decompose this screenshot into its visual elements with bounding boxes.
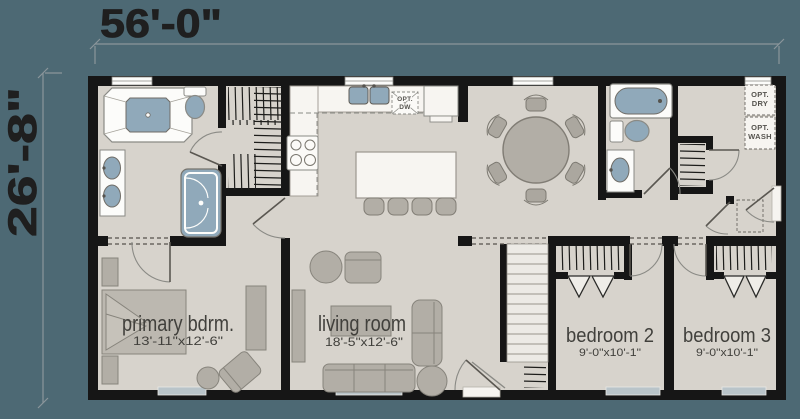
staircase [507, 244, 548, 362]
side-door-threshold [772, 186, 781, 221]
closet-rod-hatch [680, 144, 705, 186]
ottoman [417, 366, 447, 396]
opt-dw-label-line1: OPT. [397, 96, 413, 103]
overall-width-dimension: 56'-0" [100, 2, 222, 46]
bedroom3-size: 9'-0"x10'-1" [696, 347, 758, 359]
living-room-label: living room [318, 311, 406, 336]
bedroom2-label: bedroom 2 [566, 325, 654, 347]
floor-plan-drawing: 56'-0" 26'-8" [0, 0, 800, 419]
dresser [246, 286, 266, 350]
opt-dry-line2: DRY [752, 99, 768, 108]
window [606, 387, 660, 395]
hall-closet [680, 144, 705, 186]
stool [412, 198, 432, 215]
overall-depth-dimension: 26'-8" [1, 87, 45, 237]
window [158, 387, 206, 395]
opt-wash-line2: WASH [748, 132, 772, 141]
closet-rod-hatch [558, 246, 622, 270]
armchair [345, 252, 381, 283]
side-table [197, 367, 219, 389]
tv-console [292, 290, 305, 362]
floor-plan-page: 56'-0" 26'-8" [0, 0, 800, 419]
closet-rod-hatch [716, 246, 772, 270]
optional-dishwasher: OPT. DW [392, 92, 418, 114]
bedroom3-label: bedroom 3 [683, 325, 771, 347]
nightstand [102, 258, 118, 286]
loveseat [412, 300, 442, 366]
stool [364, 198, 384, 215]
cooktop [287, 136, 318, 170]
nightstand [102, 356, 118, 384]
garden-tub [104, 88, 192, 142]
bathtub [610, 84, 672, 118]
closet-rod-hatch [254, 87, 282, 190]
stool [436, 198, 456, 215]
round-table [310, 251, 342, 283]
kitchen-island [356, 152, 456, 215]
closet-rod-hatch [524, 364, 546, 388]
vanity [607, 150, 634, 192]
laundry-options: OPT. DRY OPT. WASH [745, 85, 775, 149]
bedroom2-size: 9'-0"x10'-1" [579, 347, 641, 359]
toilet [610, 121, 649, 143]
toilet [184, 87, 206, 119]
living-room-size: 18'-5"x12'-6" [325, 335, 403, 349]
primary-bedroom-label: primary bdrm. [122, 311, 234, 336]
opt-dry-line1: OPT. [751, 90, 769, 99]
dining-table [503, 117, 569, 183]
opt-wash-line1: OPT. [751, 123, 769, 132]
stool [388, 198, 408, 215]
sofa [323, 364, 415, 392]
primary-bedroom-size: 13'-11"x12'-6" [133, 334, 223, 348]
entry-door-threshold [463, 387, 500, 397]
opt-dw-label-line2: DW [399, 104, 411, 111]
closet-rod-hatch [228, 154, 256, 190]
double-vanity [100, 150, 125, 216]
shower [181, 169, 221, 237]
window [722, 387, 766, 395]
